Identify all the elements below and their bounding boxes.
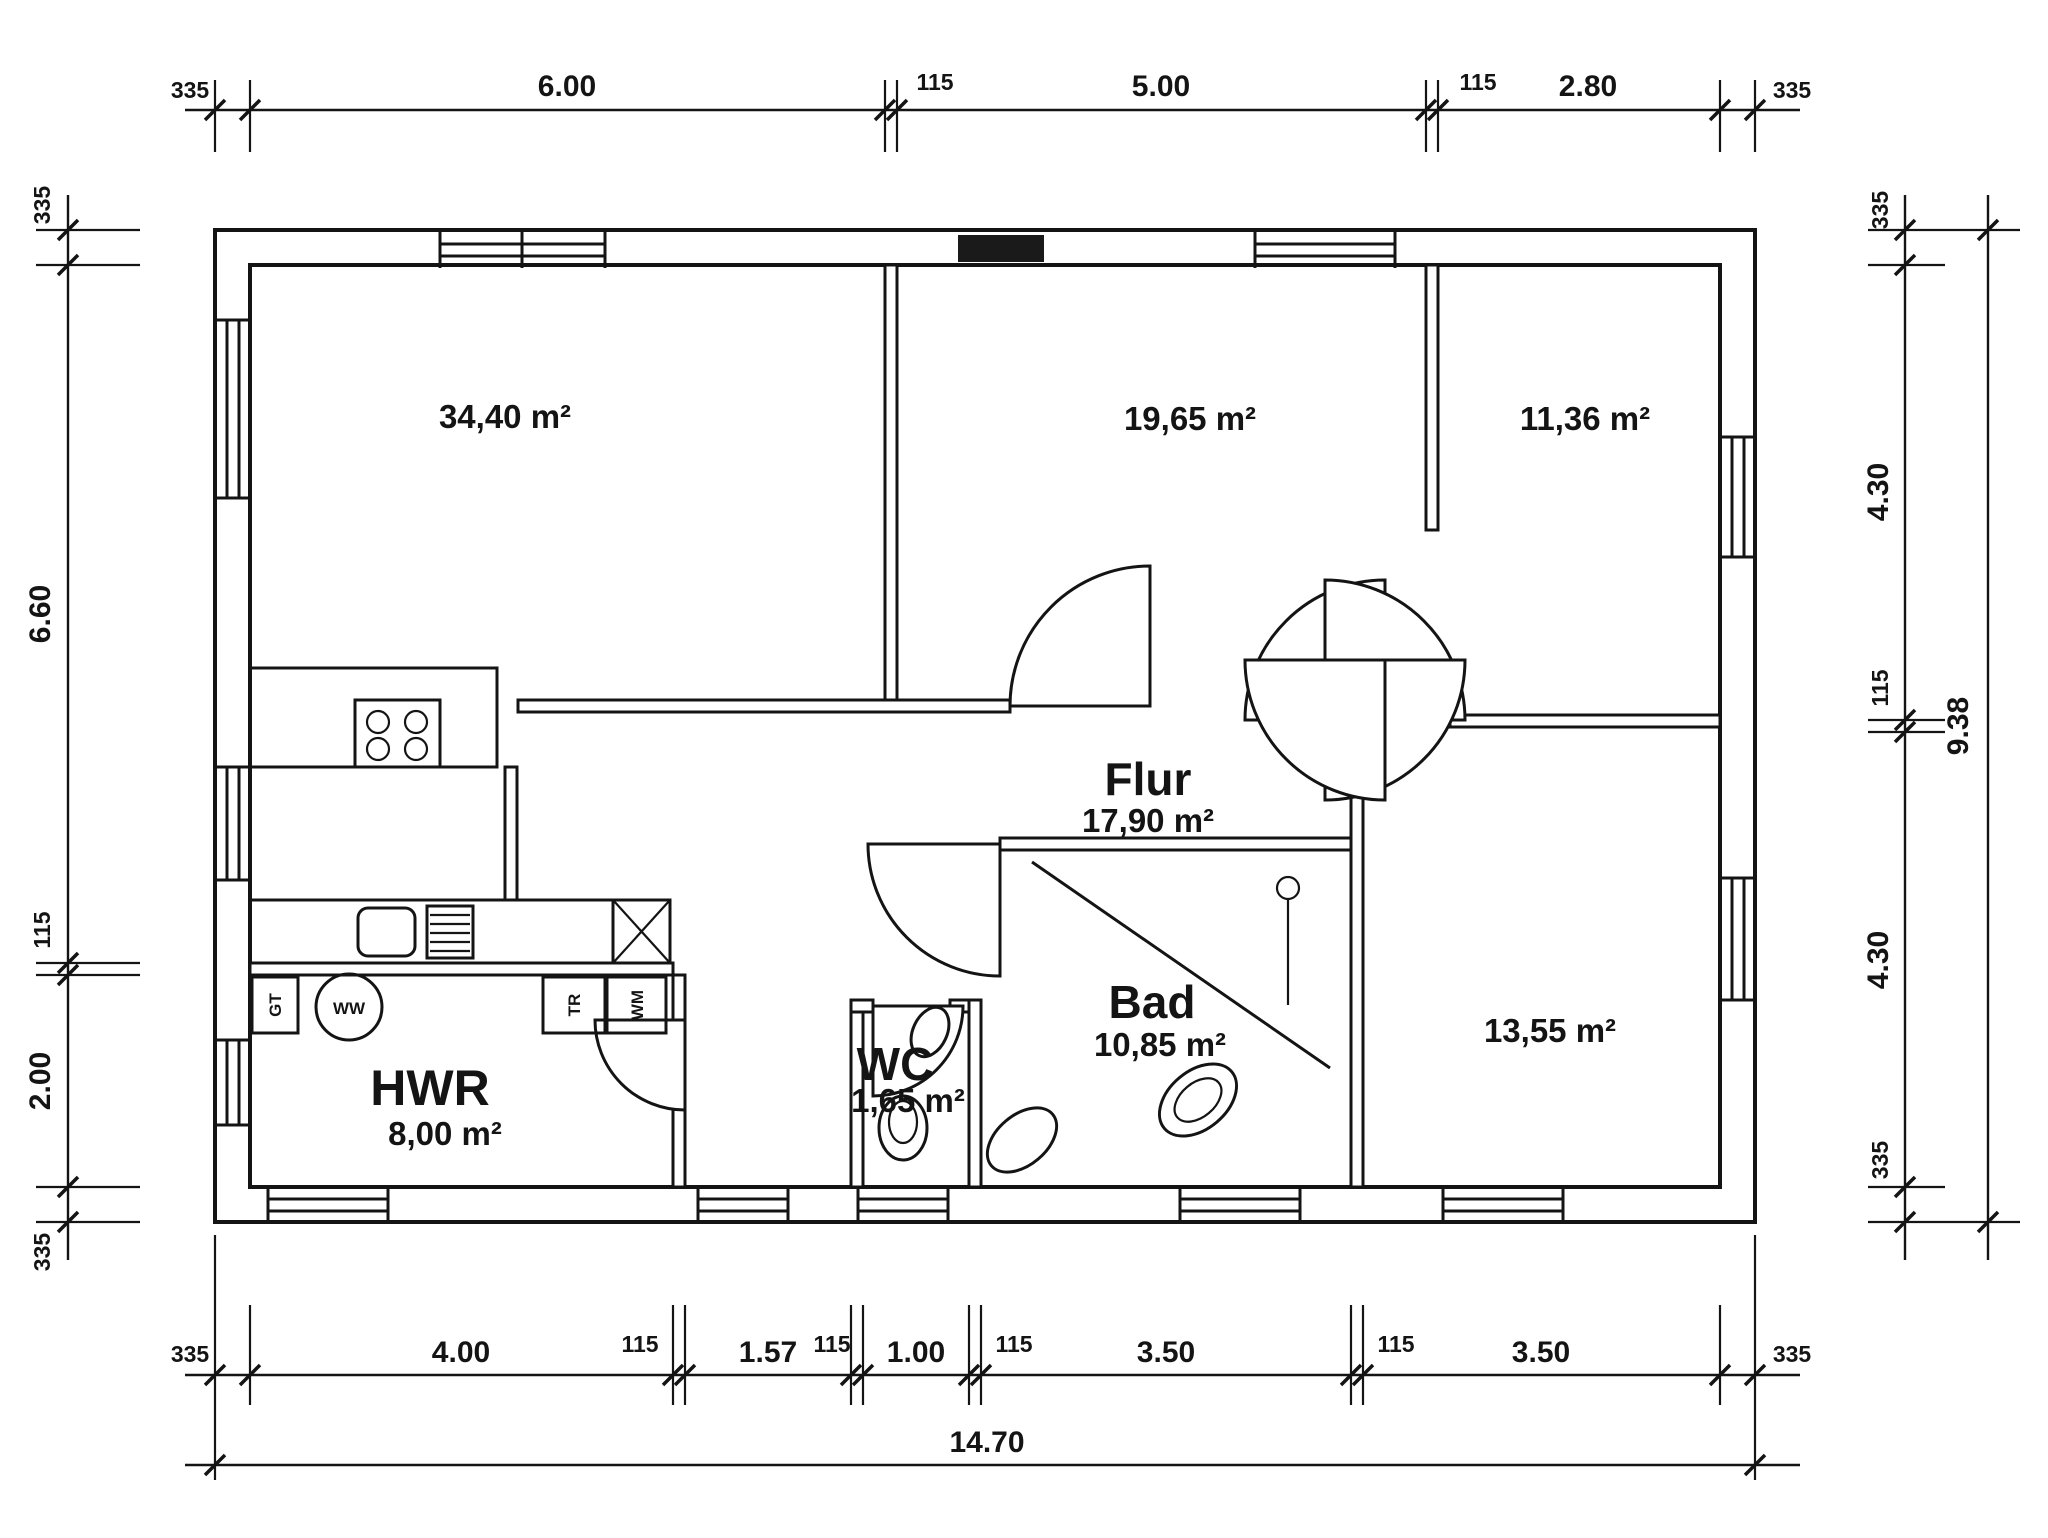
wall-wc-top-a [851, 1000, 873, 1012]
dim-top-2: 115 [916, 69, 953, 95]
cooktop [355, 700, 440, 767]
window-bottom-hwr [268, 1187, 388, 1222]
room-area-flur: 17,90 m² [1082, 802, 1214, 839]
appliance-ww-label: WW [333, 999, 366, 1018]
room-name-flur: Flur [1105, 753, 1192, 805]
room-area-hwr: 8,00 m² [388, 1115, 502, 1152]
dimension-line-right-total: 9.38 [1942, 195, 1998, 1260]
wall-living-room2 [885, 265, 897, 712]
floor-plan-svg: GT WW TR WM 34,40 m² 19,65 m² 11,36 m² F… [0, 0, 2048, 1538]
floor-plan-document: GT WW TR WM 34,40 m² 19,65 m² 11,36 m² F… [0, 0, 2048, 1538]
wall-wc-bad [969, 1000, 981, 1187]
appliance-gt-label: GT [266, 993, 285, 1017]
dim-right-2: 115 [1867, 669, 1893, 706]
dim-top-3: 5.00 [1132, 70, 1190, 103]
dim-left-4: 335 [29, 1233, 55, 1272]
dim-top-4: 115 [1459, 69, 1496, 95]
door-room2 [1010, 566, 1150, 706]
shaft-cross-icon [613, 900, 670, 963]
wall-room8-top [1450, 715, 1720, 727]
window-right-room3 [1720, 437, 1755, 557]
room-name-hwr: HWR [370, 1060, 489, 1116]
room-area-living: 34,40 m² [439, 398, 571, 435]
dim-left-0: 335 [29, 186, 55, 225]
door-bad [868, 844, 1000, 976]
window-left-kitchen [215, 767, 250, 880]
dim-top-1: 6.00 [538, 70, 596, 103]
dim-right-0: 335 [1867, 191, 1893, 230]
dim-right-1: 4.30 [1862, 463, 1895, 521]
wall-kitchen-stub [505, 767, 517, 900]
wall-hwr-corridor-a [673, 975, 685, 1025]
dim-right-total: 9.38 [1942, 697, 1975, 755]
appliance-wm-label: WM [628, 990, 647, 1020]
dim-right-3: 4.30 [1862, 931, 1895, 989]
window-left-living [215, 320, 250, 498]
door-pinwheel-sw [1245, 660, 1385, 800]
wall-kitchen-hwr [250, 963, 673, 975]
window-bottom-corridor [698, 1187, 788, 1222]
sink-icon [358, 908, 415, 956]
dim-bottom-2: 115 [621, 1331, 658, 1357]
bad-toilet-icon [1146, 1050, 1251, 1151]
wall-bad-room8 [1351, 733, 1363, 1187]
room-area-bad: 10,85 m² [1094, 1026, 1226, 1063]
room-name-bad: Bad [1109, 976, 1196, 1028]
dimension-line-top: 335 6.00 115 5.00 115 2.80 335 [171, 69, 1812, 152]
dim-top-6: 335 [1773, 77, 1812, 103]
room-area-room2: 19,65 m² [1124, 400, 1256, 437]
dim-right-4: 335 [1867, 1141, 1893, 1180]
extension-lines [215, 80, 1755, 152]
dim-bottom-total: 14.70 [949, 1426, 1024, 1459]
dim-bottom-5: 1.00 [887, 1336, 945, 1369]
chimney-block [958, 235, 1044, 262]
window-bottom-bad [1180, 1187, 1300, 1222]
hwr-appliances: GT WW TR WM [252, 974, 666, 1040]
window-bottom-room8 [1443, 1187, 1563, 1222]
window-left-hwr [215, 1040, 250, 1125]
dim-bottom-7: 3.50 [1137, 1336, 1195, 1369]
wall-hall-top [518, 700, 1010, 712]
dim-top-5: 2.80 [1559, 70, 1617, 103]
window-top-living [440, 232, 605, 268]
cooktop-burners-icon [367, 711, 427, 760]
wall-hwr-corridor-b [673, 1105, 685, 1187]
dim-bottom-9: 3.50 [1512, 1336, 1570, 1369]
window-top-room2 [1255, 232, 1395, 268]
shower-head-icon [1277, 877, 1299, 899]
room-area-room3: 11,36 m² [1520, 400, 1650, 437]
window-bottom-wc [858, 1187, 948, 1222]
dim-bottom-8: 115 [1377, 1331, 1414, 1357]
dim-top-0: 335 [171, 77, 210, 103]
dim-bottom-3: 1.57 [739, 1336, 797, 1369]
dim-left-1: 6.60 [24, 585, 57, 643]
wall-room2-room3 [1426, 265, 1438, 530]
dim-left-3: 2.00 [24, 1052, 57, 1110]
dimension-line-bottom-total: 14.70 [185, 1426, 1800, 1475]
dim-left-2: 115 [29, 911, 55, 948]
kitchen-island [250, 668, 497, 767]
bad-sink-icon [975, 1095, 1068, 1185]
room-area-wc: 1,65 m² [851, 1082, 965, 1119]
room-area-room8: 13,55 m² [1484, 1012, 1616, 1049]
window-right-room8 [1720, 878, 1755, 1000]
dim-bottom-0: 335 [171, 1341, 210, 1367]
dim-bottom-1: 4.00 [432, 1336, 490, 1369]
appliance-tr-label: TR [565, 994, 584, 1017]
dimension-line-right: 335 4.30 115 4.30 335 [1862, 191, 2020, 1260]
dim-bottom-6: 115 [995, 1331, 1032, 1357]
room-labels: 34,40 m² 19,65 m² 11,36 m² Flur 17,90 m²… [370, 398, 1650, 1152]
wall-flur-bad [1000, 838, 1363, 850]
oven-icon [427, 906, 473, 958]
dim-bottom-4: 115 [813, 1331, 850, 1357]
kitchen-counter [250, 900, 670, 963]
dimension-line-left: 335 6.60 115 2.00 335 [24, 186, 140, 1272]
dim-bottom-10: 335 [1773, 1341, 1812, 1367]
